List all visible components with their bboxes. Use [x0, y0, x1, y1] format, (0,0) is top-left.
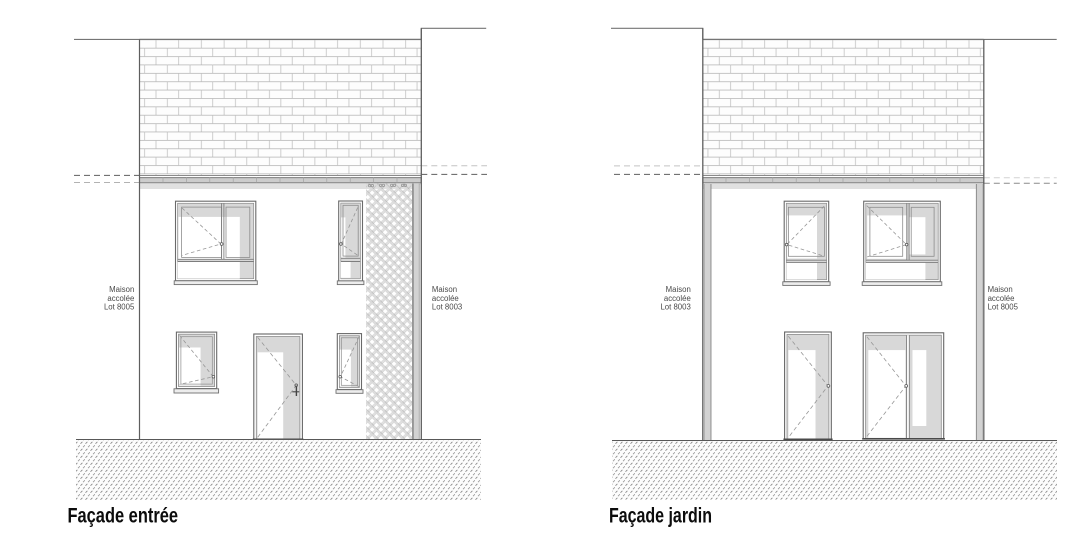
svg-text:Maison: Maison	[109, 285, 134, 294]
svg-text:Lot 8003: Lot 8003	[432, 303, 462, 312]
svg-text:Maison: Maison	[432, 285, 457, 294]
svg-text:Maison: Maison	[988, 285, 1013, 294]
svg-text:Façade jardin: Façade jardin	[609, 504, 712, 527]
svg-text:Lot 8003: Lot 8003	[660, 303, 690, 312]
svg-text:Maison: Maison	[666, 285, 691, 294]
svg-text:Façade entrée: Façade entrée	[68, 504, 179, 527]
svg-text:Lot 8005: Lot 8005	[104, 303, 135, 312]
svg-text:Lot 8005: Lot 8005	[988, 303, 1019, 312]
